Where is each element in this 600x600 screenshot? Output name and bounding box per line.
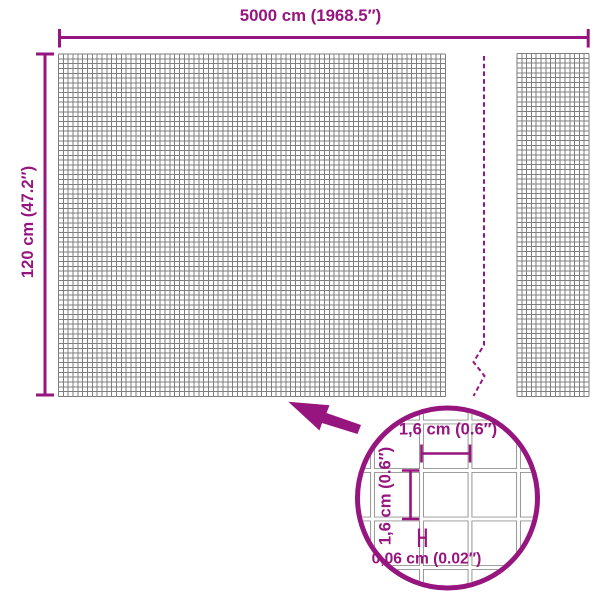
svg-text:5000 cm (1968.5″): 5000 cm (1968.5″) [240, 6, 381, 25]
svg-text:1,6 cm (0.6″): 1,6 cm (0.6″) [399, 420, 497, 439]
svg-text:1,6 cm (0.6″): 1,6 cm (0.6″) [376, 447, 395, 545]
svg-text:120 cm (47.2″): 120 cm (47.2″) [18, 166, 37, 278]
svg-text:0,06 cm (0.02″): 0,06 cm (0.02″) [372, 550, 482, 567]
